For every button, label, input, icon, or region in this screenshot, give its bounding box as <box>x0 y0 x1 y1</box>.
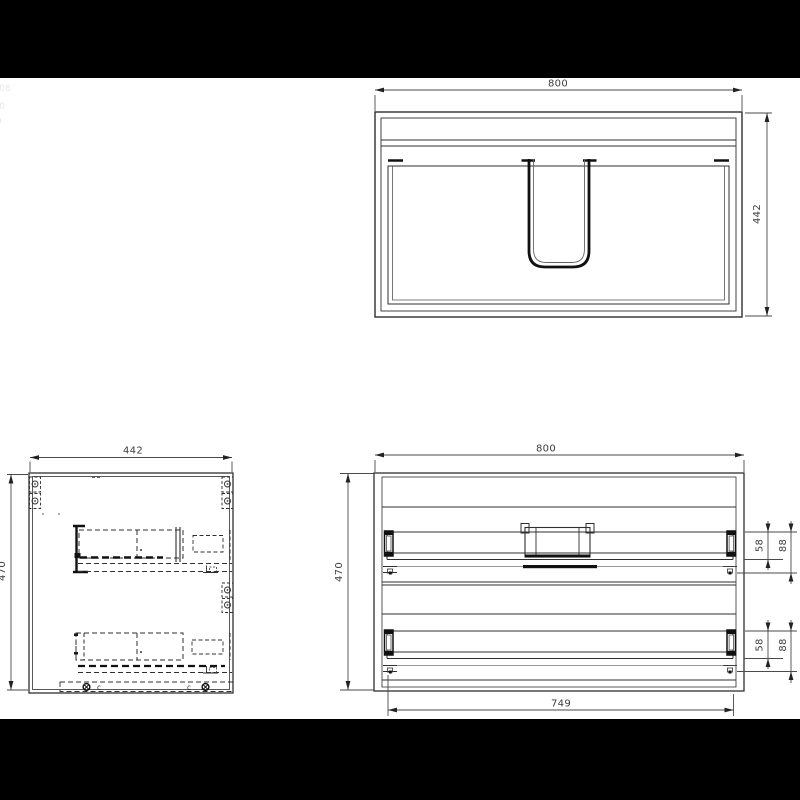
arrow-right <box>735 453 744 458</box>
plan-depth-label: 442 <box>752 204 763 224</box>
rail-lines-dashed <box>78 564 232 572</box>
rear-width-extension-lines <box>375 460 744 472</box>
side-view <box>29 473 233 693</box>
arrow-down <box>765 307 770 316</box>
drawer-back-dashed <box>76 633 84 660</box>
hanger-hardware-top-right <box>222 477 233 509</box>
fixing-block-dashed <box>193 536 223 553</box>
plan-width-extension-lines <box>375 95 742 111</box>
plan-basin-inner <box>393 166 725 300</box>
fixing-block-dashed <box>192 640 223 654</box>
arrow-left <box>388 708 397 713</box>
arrow-right <box>725 708 734 713</box>
arrow-up <box>789 672 794 681</box>
center-support-bar <box>523 565 597 568</box>
rear-lower-drawer <box>383 630 737 674</box>
arrow-down <box>789 524 794 533</box>
edge-fragment: 0 <box>0 117 2 127</box>
arrow-up <box>766 659 771 668</box>
arrow-down <box>766 524 771 533</box>
edge-fragment: -08 <box>0 84 11 94</box>
rear-dimensions <box>340 453 797 716</box>
side-height-label: 470 <box>0 561 8 581</box>
rear-upper-drawer <box>383 524 737 575</box>
rear-panel-seams <box>382 507 736 680</box>
drawer-back-strip <box>387 631 733 659</box>
rear-height-label: 470 <box>334 562 345 582</box>
arrow-down <box>789 623 794 632</box>
drawer-box-dashed <box>76 633 183 660</box>
bottom-black-bar <box>0 719 800 800</box>
arrow-left <box>30 455 39 460</box>
plan-width-label: 800 <box>548 79 568 90</box>
plan-outline <box>375 112 742 317</box>
lower-88-label: 88 <box>778 638 789 651</box>
arrow-left <box>375 88 384 93</box>
lower-58-label: 58 <box>755 638 766 651</box>
side-depth-extension-lines <box>30 462 232 473</box>
left-edge-fragments: -08 -0 0 <box>0 84 11 127</box>
arrow-down <box>766 623 771 632</box>
arrow-up <box>766 560 771 569</box>
side-bottom-strip <box>60 682 233 692</box>
upper-58-label: 58 <box>755 539 766 552</box>
sink-siphon-cutout <box>529 159 589 267</box>
side-height-extension-lines <box>7 475 28 691</box>
plan-inner-wall <box>381 118 736 311</box>
hanger-hardware-mid-right <box>222 583 233 613</box>
rear-view <box>374 473 744 691</box>
side-upper-drawer <box>73 525 232 573</box>
arrow-up <box>789 573 794 582</box>
plan-view <box>375 112 742 317</box>
waste-cutout-box <box>521 524 594 558</box>
arrow-right <box>223 455 232 460</box>
arrow-down <box>9 681 14 690</box>
sink-siphon-cutout-inner <box>534 159 585 263</box>
hardware-label-right: c <box>187 683 191 692</box>
screw-cross <box>85 685 89 689</box>
rear-span-label: 749 <box>551 699 571 710</box>
drawing-canvas: -08 -0 0 800 442 <box>0 0 800 800</box>
drawer-front-edge <box>176 527 180 562</box>
side-inner-wall <box>33 477 230 690</box>
arrow-up <box>346 474 351 483</box>
rear-width-label: 800 <box>536 444 556 455</box>
arrow-up <box>765 113 770 122</box>
top-black-bar <box>0 0 800 78</box>
slide-bracket-block <box>75 553 81 558</box>
upper-88-label: 88 <box>778 539 789 552</box>
slide-bracket <box>73 525 88 573</box>
drawer-dot <box>140 651 142 653</box>
drawer-dot <box>140 549 142 551</box>
faint-dot <box>42 513 44 515</box>
hanger-hardware-top-left <box>30 477 41 509</box>
plan-back-rail <box>381 140 736 146</box>
drawer-box-dashed <box>79 530 183 558</box>
arrow-right <box>733 88 742 93</box>
arrow-down <box>346 681 351 690</box>
screw-cross <box>204 685 208 689</box>
edge-fragment: -0 <box>0 102 5 112</box>
rear-height-extension-lines <box>340 474 374 691</box>
plan-dimensions <box>375 88 772 316</box>
faint-dot <box>58 513 60 515</box>
side-lower-drawer <box>74 633 232 673</box>
hardware-label-left: c <box>97 683 101 692</box>
arrow-up <box>9 475 14 484</box>
side-dimensions <box>7 455 232 690</box>
side-depth-label: 442 <box>123 446 143 457</box>
plan-basin-outline <box>388 166 729 304</box>
damper-box <box>210 668 217 673</box>
arrow-left <box>375 453 384 458</box>
